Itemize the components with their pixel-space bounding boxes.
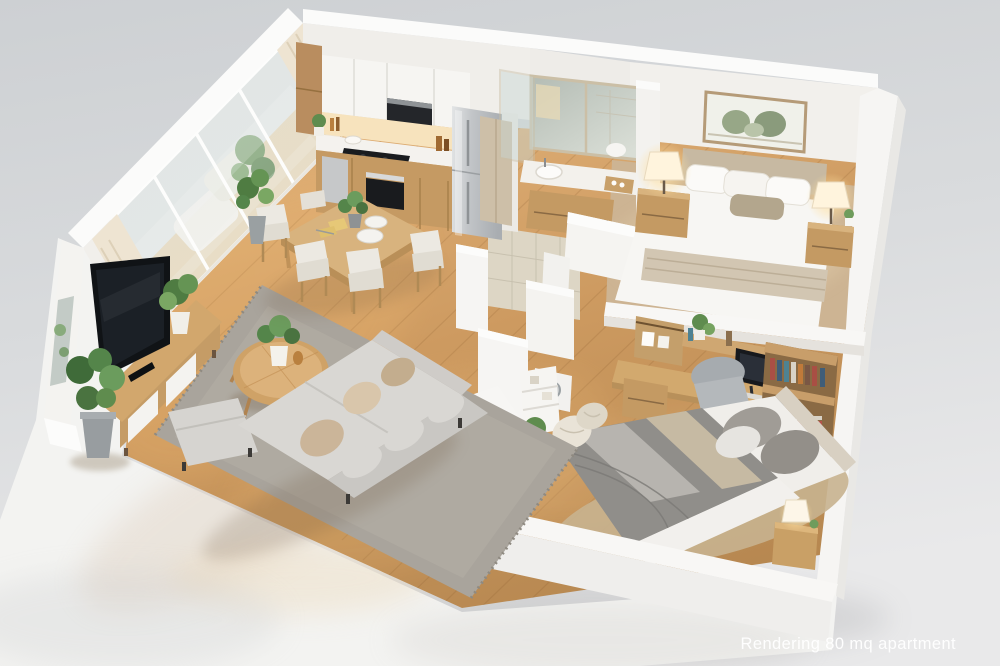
- dishwasher: [322, 156, 348, 205]
- bedroom2-lamp: [782, 500, 810, 522]
- plate-2: [357, 229, 383, 243]
- lamp-left: [636, 142, 692, 198]
- sink: [536, 165, 562, 179]
- plant-pot: [82, 416, 114, 458]
- shower-glass: [500, 70, 534, 164]
- table-vase: [270, 346, 288, 366]
- rendering-canvas: [0, 0, 1000, 666]
- hall-wall-1: [456, 244, 488, 334]
- caption-text: Rendering 80 mq apartment: [741, 635, 956, 654]
- apartment-rendering: Rendering 80 mq apartment: [0, 0, 1000, 666]
- plate-1: [365, 216, 387, 228]
- nightstand-right: [805, 222, 854, 268]
- toilet: [606, 143, 626, 157]
